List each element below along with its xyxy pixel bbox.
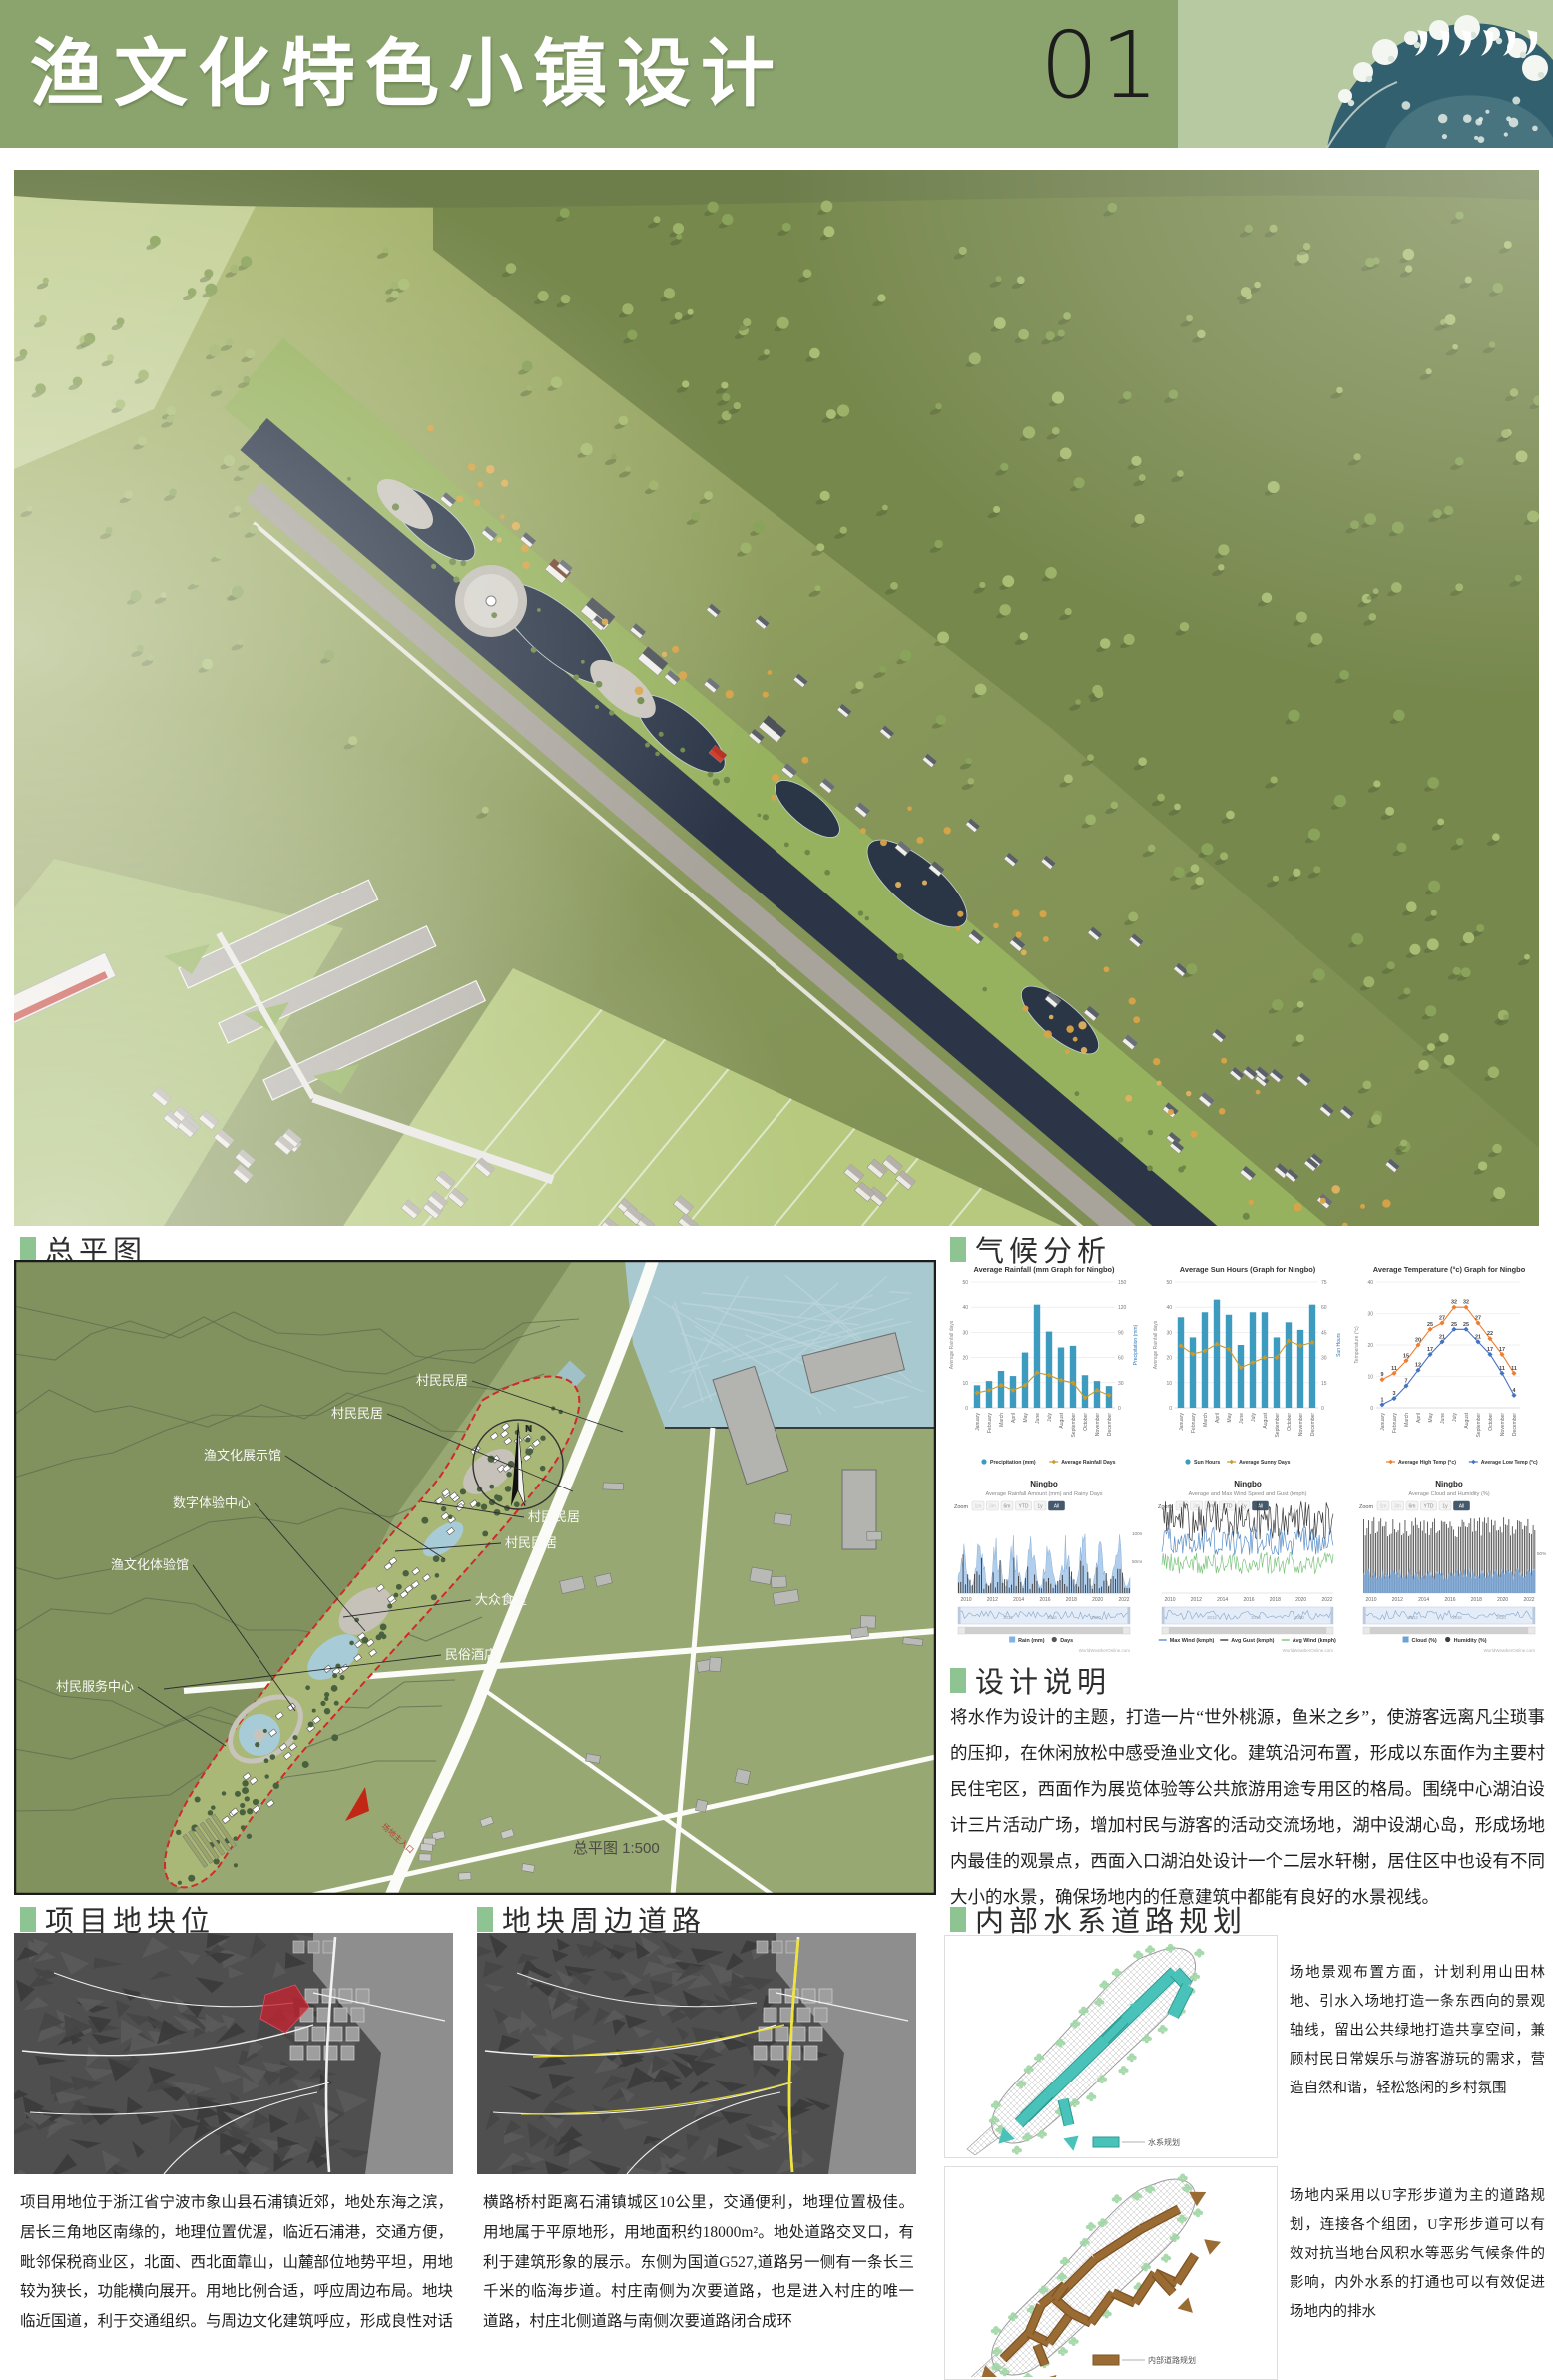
cloud-humidity-chart: NingboAverage Cloud and Humidity (%)Zoom… [1351, 1476, 1547, 1657]
svg-text:6m: 6m [1409, 1504, 1416, 1510]
svg-text:40: 40 [1166, 1305, 1172, 1311]
svg-text:2022: 2022 [1321, 1597, 1332, 1603]
chart-scrollbar[interactable] [1162, 1627, 1333, 1634]
header-banner: 渔文化特色小镇设计 01 [0, 0, 1553, 148]
svg-text:Average Sun Hours (Graph for N: Average Sun Hours (Graph for Ningbo) [1180, 1265, 1316, 1274]
svg-text:内部道路规划: 内部道路规划 [1148, 2355, 1196, 2365]
svg-text:WorldWeatherOnline.com: WorldWeatherOnline.com [1079, 1648, 1131, 1653]
svg-text:2012: 2012 [1408, 1615, 1418, 1620]
svg-text:Average Rainfall Days: Average Rainfall Days [1061, 1460, 1115, 1466]
svg-text:总平图 1:500: 总平图 1:500 [573, 1840, 660, 1857]
svg-text:60: 60 [1118, 1356, 1124, 1362]
svg-text:30: 30 [962, 1330, 968, 1336]
svg-text:Average Temperature (°c) Graph: Average Temperature (°c) Graph for Ningb… [1373, 1265, 1526, 1274]
poster-page: 渔文化特色小镇设计 01 总平图 气候分析 设计说明 项目地块位 地块周边道路 … [0, 0, 1553, 2380]
svg-text:2016: 2016 [1047, 1615, 1057, 1620]
svg-text:May: May [1227, 1413, 1233, 1423]
svg-text:2012: 2012 [1207, 1615, 1217, 1620]
svg-text:YTD: YTD [1019, 1504, 1029, 1510]
svg-text:All: All [1459, 1504, 1465, 1510]
map-label: 村民民居 [505, 1535, 557, 1550]
svg-text:2018: 2018 [1066, 1597, 1077, 1603]
svg-text:October: October [1488, 1413, 1494, 1431]
svg-text:2010: 2010 [1164, 1597, 1175, 1603]
svg-text:10: 10 [1367, 1375, 1373, 1381]
water-plan-legend: 水系规划 [1093, 2137, 1180, 2147]
svg-text:2020: 2020 [1496, 1615, 1506, 1620]
svg-text:Humidity (%): Humidity (%) [1454, 1638, 1487, 1644]
svg-text:12: 12 [1415, 1363, 1421, 1369]
water-plan-text: 场地景观布置方面，计划利用山田林地、引水入场地打造一条东西向的景观轴线，留出公共… [1290, 1959, 1545, 2103]
svg-text:45: 45 [1321, 1330, 1327, 1336]
svg-text:Precipitation (mm): Precipitation (mm) [990, 1460, 1036, 1466]
svg-text:11: 11 [1499, 1366, 1505, 1372]
svg-text:2018: 2018 [1471, 1597, 1482, 1603]
svg-text:November: November [1500, 1413, 1506, 1436]
svg-text:0: 0 [1370, 1406, 1373, 1412]
map-label: 渔文化展示馆 [204, 1448, 281, 1463]
svg-text:January: January [1380, 1413, 1386, 1431]
site-location-aerial-photo [14, 1933, 453, 2174]
svg-text:December: December [1107, 1413, 1113, 1436]
svg-text:July: July [1251, 1413, 1257, 1422]
section-bullet [20, 1907, 36, 1932]
map-label: 村民服务中心 [56, 1679, 134, 1694]
svg-text:Average High Temp (°c): Average High Temp (°c) [1398, 1460, 1456, 1466]
svg-text:November: November [1095, 1413, 1101, 1436]
svg-text:50%: 50% [1537, 1551, 1546, 1556]
svg-text:2010: 2010 [1365, 1597, 1376, 1603]
svg-text:2016: 2016 [1039, 1597, 1050, 1603]
svg-text:WorldWeatherOnline.com: WorldWeatherOnline.com [1484, 1648, 1536, 1653]
svg-text:27: 27 [1439, 1315, 1445, 1321]
section-bullet [20, 1237, 36, 1262]
svg-text:2020: 2020 [1092, 1597, 1103, 1603]
svg-text:3m: 3m [989, 1504, 996, 1510]
chart-scrollbar[interactable] [1363, 1627, 1535, 1634]
svg-text:Ningbo: Ningbo [1234, 1480, 1262, 1488]
road-plan-text: 场地内采用以U字形步道为主的道路规划，连接各个组团，U字形步道可以有效对抗当地台… [1290, 2182, 1545, 2327]
svg-text:6m: 6m [1004, 1504, 1011, 1510]
svg-text:Zoom: Zoom [1359, 1504, 1373, 1510]
svg-text:November: November [1298, 1413, 1304, 1436]
map-label: 渔文化体验馆 [111, 1557, 189, 1572]
svg-text:21: 21 [1439, 1334, 1445, 1340]
svg-text:2018: 2018 [1270, 1597, 1281, 1603]
section-title: 设计说明 [975, 1659, 1111, 1701]
svg-text:11: 11 [1511, 1366, 1517, 1372]
svg-text:水系规划: 水系规划 [1148, 2137, 1180, 2147]
svg-text:25: 25 [1463, 1322, 1469, 1328]
map-label: 民俗酒店 [445, 1647, 497, 1662]
svg-text:0: 0 [1169, 1406, 1172, 1412]
svg-text:January: January [1179, 1413, 1185, 1431]
svg-text:50: 50 [1166, 1280, 1172, 1286]
svg-text:Ningbo: Ningbo [1435, 1480, 1463, 1488]
wind-history-chart: NingboAverage and Max Wind Speed and Gus… [1150, 1476, 1345, 1657]
surrounding-roads-text: 横路桥村距离石浦镇城区10公里，交通便利，地理位置极佳。用地属于平原地形，用地面… [483, 2188, 914, 2337]
chart-scrollbar[interactable] [958, 1627, 1130, 1634]
svg-text:September: September [1071, 1413, 1077, 1438]
svg-text:50: 50 [962, 1280, 968, 1286]
svg-text:50mm: 50mm [1132, 1559, 1142, 1564]
svg-text:0: 0 [965, 1406, 968, 1412]
svg-text:2020: 2020 [1497, 1597, 1508, 1603]
svg-text:17: 17 [1499, 1347, 1505, 1353]
svg-text:Cloud (%): Cloud (%) [1412, 1638, 1437, 1644]
svg-text:2020: 2020 [1295, 1597, 1306, 1603]
svg-text:0: 0 [1321, 1406, 1324, 1412]
svg-text:April: April [1011, 1413, 1017, 1423]
svg-text:90: 90 [1118, 1330, 1124, 1336]
svg-text:April: April [1416, 1413, 1422, 1423]
map-label: 数字体验中心 [173, 1495, 251, 1510]
svg-text:4: 4 [1513, 1388, 1516, 1394]
map-label: 村民民居 [528, 1509, 580, 1524]
svg-text:25: 25 [1451, 1322, 1457, 1328]
svg-text:February: February [1392, 1413, 1398, 1434]
road-plan-legend: 内部道路规划 [1093, 2355, 1196, 2365]
svg-text:Avg Wind (kmph): Avg Wind (kmph) [1293, 1638, 1336, 1644]
svg-text:3: 3 [1393, 1391, 1396, 1397]
rain-history-chart: NingboAverage Rainfall Amount (mm) and R… [946, 1476, 1142, 1657]
svg-text:2022: 2022 [1118, 1597, 1129, 1603]
svg-text:2016: 2016 [1452, 1615, 1462, 1620]
site-location-text: 项目用地位于浙江省宁波市象山县石浦镇近郊，地处东海之滨，居长三角地区南缘的，地理… [20, 2188, 453, 2337]
svg-text:10: 10 [1166, 1381, 1172, 1387]
svg-text:December: December [1310, 1413, 1316, 1436]
section-bullet [950, 1237, 966, 1262]
svg-text:Max Wind (kmph): Max Wind (kmph) [1170, 1638, 1215, 1644]
svg-text:21: 21 [1475, 1334, 1481, 1340]
svg-text:September: September [1476, 1413, 1482, 1438]
svg-text:20: 20 [962, 1356, 968, 1362]
svg-text:20: 20 [1367, 1343, 1373, 1349]
svg-text:January: January [975, 1413, 981, 1431]
svg-text:2014: 2014 [1217, 1597, 1228, 1603]
road-plan-panel: 内部道路规划 [944, 2166, 1278, 2380]
svg-text:20: 20 [1166, 1356, 1172, 1362]
svg-text:30: 30 [1367, 1312, 1373, 1318]
svg-text:40: 40 [962, 1305, 968, 1311]
svg-text:11: 11 [1391, 1366, 1397, 1372]
svg-text:April: April [1215, 1413, 1221, 1423]
svg-text:32: 32 [1463, 1300, 1469, 1306]
svg-text:25: 25 [1427, 1322, 1433, 1328]
svg-text:2016: 2016 [1444, 1597, 1455, 1603]
svg-text:July: July [1047, 1413, 1053, 1422]
svg-text:Rain (mm): Rain (mm) [1018, 1638, 1045, 1644]
svg-text:Average Rainfall (mm Graph for: Average Rainfall (mm Graph for Ningbo) [974, 1265, 1116, 1274]
map-label: 村民民居 [331, 1406, 383, 1421]
masterplan-map: N场地主入口村民民居村民民居渔文化展示馆数字体验中心渔文化体验馆村民服务中心村民… [14, 1260, 936, 1895]
svg-text:Average Sunny Days: Average Sunny Days [1239, 1460, 1291, 1466]
svg-text:All: All [1054, 1504, 1060, 1510]
svg-text:August: August [1464, 1412, 1470, 1428]
svg-text:Average Rainfall Amount (mm) a: Average Rainfall Amount (mm) and Rainy D… [985, 1491, 1102, 1497]
svg-text:15: 15 [1321, 1381, 1327, 1387]
svg-text:30: 30 [1321, 1356, 1327, 1362]
svg-text:2022: 2022 [1523, 1597, 1534, 1603]
svg-text:1: 1 [1381, 1397, 1384, 1403]
great-wave-icon [1178, 0, 1553, 148]
svg-text:Average Cloud and Humidity (%): Average Cloud and Humidity (%) [1408, 1491, 1489, 1497]
wave-panel [1178, 0, 1553, 148]
water-plan-panel: 水系规划 [944, 1935, 1278, 2158]
svg-text:May: May [1023, 1413, 1029, 1423]
svg-text:7: 7 [1405, 1378, 1408, 1384]
svg-text:2012: 2012 [1003, 1615, 1013, 1620]
svg-text:October: October [1083, 1413, 1089, 1431]
svg-text:30: 30 [1166, 1330, 1172, 1336]
svg-text:Zoom: Zoom [954, 1504, 968, 1510]
svg-text:2016: 2016 [1251, 1615, 1261, 1620]
map-label: 村民民居 [416, 1373, 468, 1388]
svg-text:2014: 2014 [1013, 1597, 1024, 1603]
svg-text:40: 40 [1367, 1280, 1373, 1286]
svg-text:October: October [1287, 1413, 1293, 1431]
svg-text:75: 75 [1321, 1280, 1327, 1286]
section-bullet [950, 1668, 966, 1693]
svg-text:27: 27 [1475, 1315, 1481, 1321]
svg-text:Average Low Temp (°c): Average Low Temp (°c) [1481, 1460, 1538, 1466]
svg-text:February: February [1191, 1413, 1197, 1434]
svg-text:2020: 2020 [1294, 1615, 1304, 1620]
map-label: 大众食堂 [475, 1592, 527, 1607]
svg-text:2012: 2012 [1191, 1597, 1202, 1603]
aerial-rendering [14, 170, 1539, 1226]
svg-text:June: June [1440, 1413, 1446, 1424]
svg-text:March: March [1203, 1413, 1209, 1427]
svg-text:9: 9 [1381, 1372, 1384, 1378]
svg-text:WorldWeatherOnline.com: WorldWeatherOnline.com [1283, 1648, 1334, 1653]
temperature-chart: Average Temperature (°c) Graph for Ningb… [1351, 1260, 1547, 1470]
svg-text:2020: 2020 [1091, 1615, 1101, 1620]
svg-text:2014: 2014 [1418, 1597, 1429, 1603]
svg-text:July: July [1452, 1413, 1458, 1422]
sun-hours-chart: Average Sun Hours (Graph for Ningbo)0010… [1150, 1260, 1345, 1470]
svg-text:Sun Hours: Sun Hours [1194, 1460, 1220, 1466]
svg-text:Avg Gust (kmph): Avg Gust (kmph) [1231, 1638, 1274, 1644]
svg-text:June: June [1035, 1413, 1041, 1424]
svg-text:120: 120 [1118, 1305, 1127, 1311]
svg-text:Ningbo: Ningbo [1030, 1480, 1058, 1488]
svg-text:August: August [1059, 1412, 1065, 1428]
svg-text:N: N [525, 1424, 532, 1435]
svg-text:June: June [1239, 1413, 1245, 1424]
page-title: 渔文化特色小镇设计 [30, 14, 784, 121]
svg-text:Average and Max Wind Speed and: Average and Max Wind Speed and Gust (kmp… [1189, 1491, 1307, 1497]
svg-text:August: August [1263, 1412, 1269, 1428]
svg-text:Days: Days [1060, 1638, 1073, 1644]
svg-text:1m: 1m [1380, 1504, 1387, 1510]
svg-text:March: March [1404, 1413, 1410, 1427]
design-notes-text: 将水作为设计的主题，打造一片“世外桃源，鱼米之乡”，使游客远离凡尘琐事的压抑，在… [950, 1699, 1545, 1915]
svg-text:YTD: YTD [1424, 1504, 1434, 1510]
svg-text:2016: 2016 [1243, 1597, 1254, 1603]
svg-text:2012: 2012 [1392, 1597, 1403, 1603]
svg-text:100mm: 100mm [1132, 1531, 1142, 1536]
svg-text:32: 32 [1451, 1300, 1457, 1306]
surrounding-roads-aerial-photo [477, 1933, 916, 2174]
svg-text:Sun Hours: Sun Hours [1336, 1333, 1342, 1357]
svg-text:10: 10 [962, 1381, 968, 1387]
svg-text:30: 30 [1118, 1381, 1124, 1387]
svg-text:September: September [1275, 1413, 1281, 1438]
svg-text:May: May [1428, 1413, 1434, 1423]
svg-text:17: 17 [1487, 1347, 1493, 1353]
svg-text:1y: 1y [1241, 1504, 1247, 1510]
svg-text:60: 60 [1321, 1305, 1327, 1311]
section-design-notes: 设计说明 [950, 1659, 1111, 1701]
svg-text:Average Rainfall days: Average Rainfall days [949, 1320, 955, 1369]
svg-text:February: February [987, 1413, 993, 1434]
page-number: 01 [1040, 12, 1161, 119]
svg-text:2012: 2012 [987, 1597, 998, 1603]
water-plan-diagram: 水系规划 [945, 1936, 1275, 2155]
svg-text:17: 17 [1427, 1347, 1433, 1353]
svg-text:March: March [999, 1413, 1005, 1427]
svg-text:1y: 1y [1442, 1504, 1448, 1510]
section-bullet [477, 1907, 493, 1932]
svg-text:December: December [1512, 1413, 1518, 1436]
svg-text:0: 0 [1118, 1406, 1121, 1412]
svg-text:1y: 1y [1037, 1504, 1043, 1510]
svg-text:1m: 1m [975, 1504, 982, 1510]
svg-text:Average Rainfall days: Average Rainfall days [1153, 1320, 1159, 1369]
svg-text:150: 150 [1118, 1280, 1127, 1286]
svg-text:3m: 3m [1394, 1504, 1401, 1510]
rainfall-chart: Average Rainfall (mm Graph for Ningbo)00… [946, 1260, 1142, 1470]
svg-text:15: 15 [1403, 1353, 1409, 1359]
svg-text:Temperature (°c): Temperature (°c) [1354, 1326, 1360, 1364]
road-plan-diagram: 内部道路规划 [945, 2167, 1275, 2377]
svg-text:20: 20 [1415, 1338, 1421, 1344]
svg-text:Precipitation (mm): Precipitation (mm) [1133, 1324, 1139, 1365]
svg-text:22: 22 [1487, 1331, 1493, 1337]
svg-text:2010: 2010 [960, 1597, 971, 1603]
